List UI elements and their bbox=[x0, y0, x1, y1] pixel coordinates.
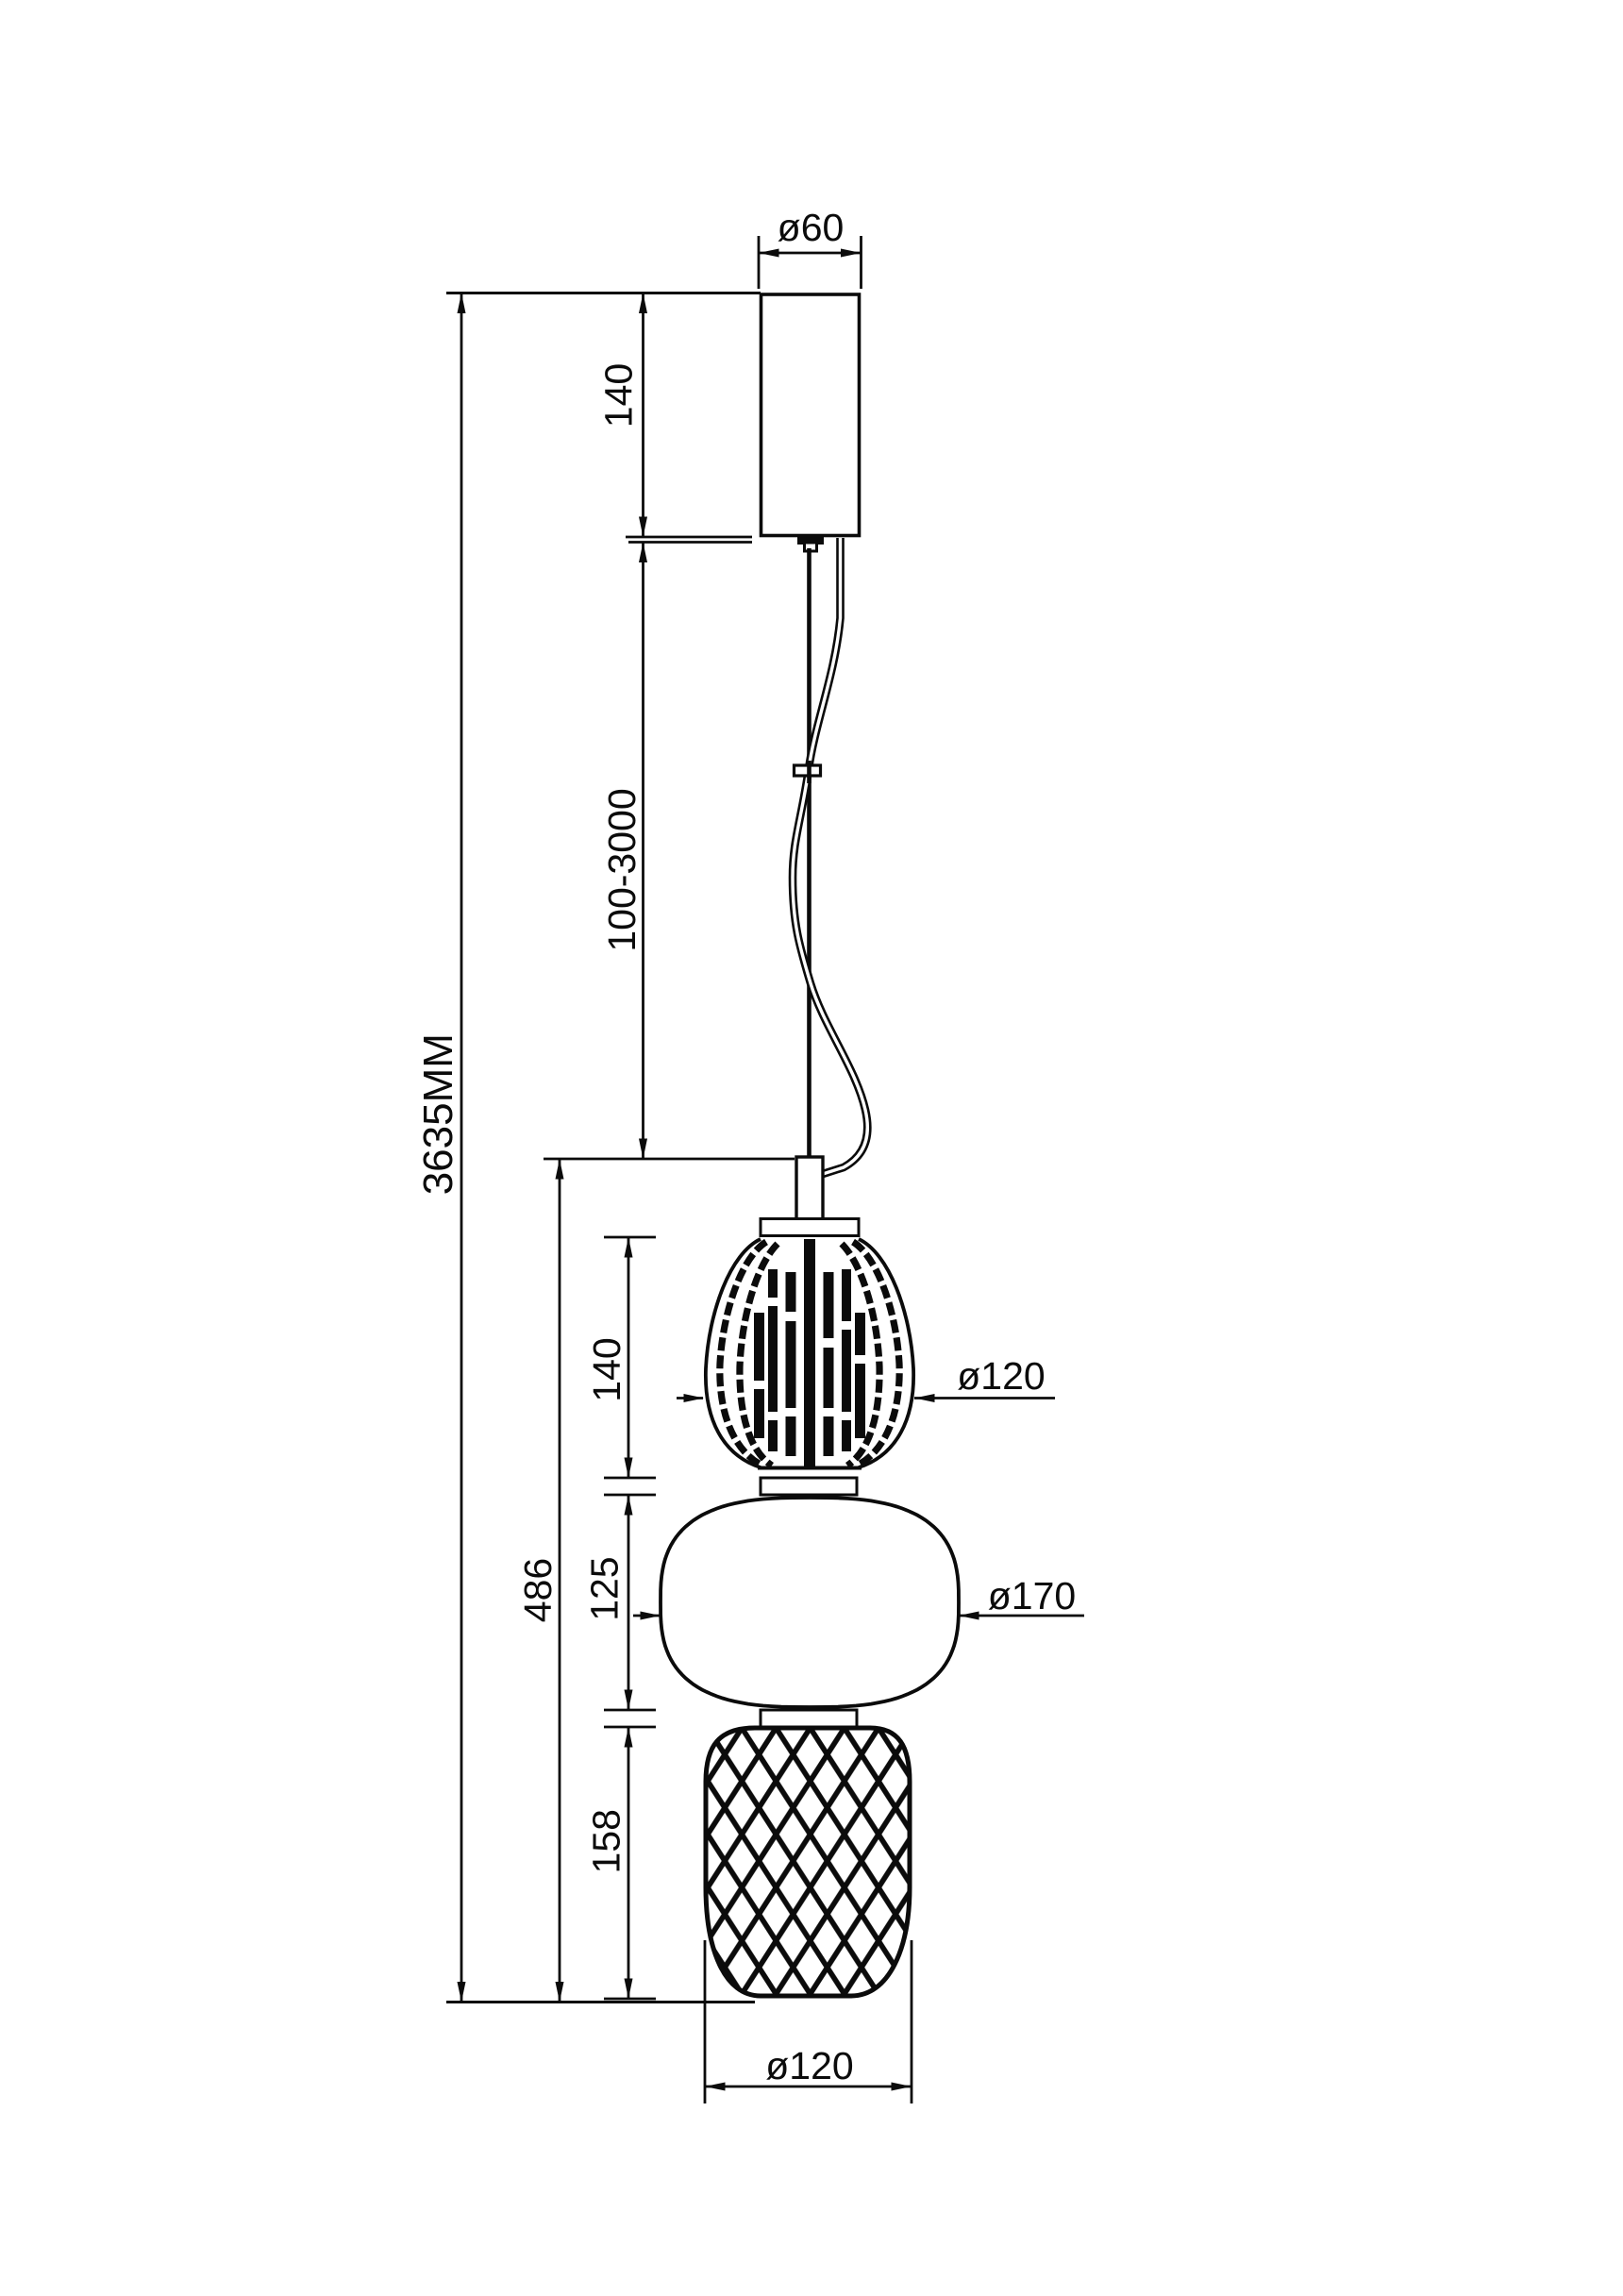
svg-text:140: 140 bbox=[597, 363, 641, 427]
svg-text:ø170: ø170 bbox=[988, 1574, 1076, 1617]
svg-text:158: 158 bbox=[585, 1809, 628, 1873]
svg-text:3635MM: 3635MM bbox=[415, 1033, 461, 1195]
svg-text:486: 486 bbox=[516, 1558, 560, 1622]
svg-text:ø60: ø60 bbox=[778, 206, 845, 249]
svg-text:140: 140 bbox=[585, 1337, 628, 1401]
svg-text:125: 125 bbox=[583, 1556, 627, 1620]
svg-text:100-3000: 100-3000 bbox=[600, 788, 644, 951]
svg-text:ø120: ø120 bbox=[765, 2044, 853, 2087]
svg-text:ø120: ø120 bbox=[957, 1354, 1045, 1398]
